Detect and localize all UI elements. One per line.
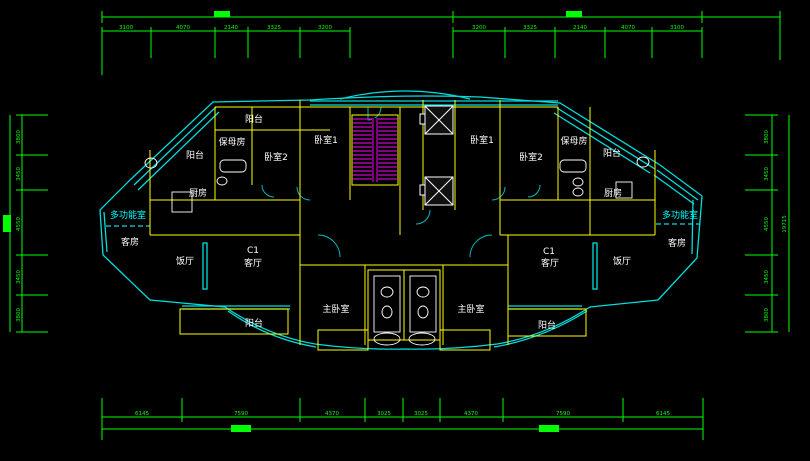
dim-label: 3325 xyxy=(523,25,537,31)
dim-label: 6145 xyxy=(656,411,670,417)
dim-label: 2140 xyxy=(573,25,587,31)
dim-label: 4550 xyxy=(16,217,22,231)
dim-label: 4370 xyxy=(325,411,339,417)
dimension-bottom: 6145 7590 4370 3025 3025 4370 7590 6145 xyxy=(102,398,703,440)
unit-code-left: C1 xyxy=(247,246,259,256)
room-label-bedroom2-right: 卧室2 xyxy=(519,151,543,163)
dim-label: 6145 xyxy=(135,411,149,417)
dim-label: 3025 xyxy=(377,411,391,417)
dim-label: 4070 xyxy=(621,25,635,31)
room-label-master-left: 主卧室 xyxy=(322,303,349,315)
room-label-living-right: 客厅 xyxy=(541,257,559,269)
elevator-shafts xyxy=(420,106,453,205)
dim-label: 3800 xyxy=(16,308,22,322)
staircase xyxy=(353,118,397,182)
dimension-left: 3800 3450 4550 3450 3800 xyxy=(3,115,48,332)
dim-label: 3450 xyxy=(16,270,22,284)
room-label-master-right: 主卧室 xyxy=(457,303,484,315)
dim-label: 3800 xyxy=(764,308,770,322)
room-label-bedroom2-left: 卧室2 xyxy=(264,151,288,163)
room-label-bedroom1-right: 卧室1 xyxy=(470,134,494,146)
building-shell xyxy=(100,91,702,349)
room-label-bedroom1-left: 卧室1 xyxy=(314,134,338,146)
dim-label: 7590 xyxy=(556,411,570,417)
tub-center-right xyxy=(409,333,435,345)
room-label-kitchen-right: 厨房 xyxy=(604,187,622,199)
dim-label: 3200 xyxy=(318,25,332,31)
dim-label: 3800 xyxy=(16,130,22,144)
room-label-nanny-right: 保母房 xyxy=(560,135,587,147)
elevator-1 xyxy=(420,106,453,134)
toilet-left xyxy=(217,177,227,185)
dim-label: 4550 xyxy=(764,217,770,231)
room-label-guest-left: 客房 xyxy=(121,236,139,248)
dim-label: 3800 xyxy=(764,130,770,144)
dim-label: 3450 xyxy=(764,270,770,284)
room-label-balcony-bottom-right: 阳台 xyxy=(538,319,556,331)
room-label-multifunction-right: 多功能室 xyxy=(662,209,698,221)
dim-label: 3100 xyxy=(119,25,133,31)
cad-drawing-canvas[interactable]: 3100 4070 2140 3325 3200 3200 3325 2140 … xyxy=(0,0,810,461)
dim-label: 3450 xyxy=(764,167,770,181)
bathtub-right xyxy=(560,160,586,172)
dim-label: 7590 xyxy=(234,411,248,417)
dim-text-blob xyxy=(3,215,11,232)
outer-facade xyxy=(100,96,702,349)
dim-text-blob xyxy=(231,425,251,432)
dim-label: 4370 xyxy=(464,411,478,417)
bathtub-left xyxy=(220,160,246,172)
dim-text-blob xyxy=(566,11,582,17)
dim-label: 3200 xyxy=(472,25,486,31)
room-label-balcony-left: 阳台 xyxy=(186,149,204,161)
floor-plan-svg: 3100 4070 2140 3325 3200 3200 3325 2140 … xyxy=(0,0,810,461)
room-label-multifunction-left: 多功能室 xyxy=(110,209,146,221)
basin-right xyxy=(573,188,583,196)
room-label-kitchen-left: 厨房 xyxy=(189,187,207,199)
room-label-balcony-top-left: 阳台 xyxy=(245,113,263,125)
dim-label: 3325 xyxy=(267,25,281,31)
toilet-right xyxy=(573,178,583,186)
tub-center-left xyxy=(374,333,400,345)
dimension-right: 3800 3450 4550 3450 3800 19715 xyxy=(745,115,789,332)
room-label-balcony-bottom-left: 阳台 xyxy=(245,317,263,329)
room-label-guest-right: 客房 xyxy=(668,237,686,249)
bath-cabinet-left xyxy=(374,276,400,332)
dim-label: 4070 xyxy=(176,25,190,31)
dim-overall-label: 19715 xyxy=(782,215,788,233)
dim-text-blob xyxy=(214,11,230,17)
dim-label: 3100 xyxy=(670,25,684,31)
room-label-living-left: 客厅 xyxy=(244,257,262,269)
dimension-top: 3100 4070 2140 3325 3200 3200 3325 2140 … xyxy=(102,11,780,75)
dim-label: 3025 xyxy=(414,411,428,417)
window-accent-left xyxy=(203,243,207,289)
dim-label: 3450 xyxy=(16,167,22,181)
room-label-nanny-left: 保母房 xyxy=(218,136,245,148)
window-accent-right xyxy=(593,243,597,289)
dim-text-blob xyxy=(539,425,559,432)
room-label-balcony-top-right: 阳台 xyxy=(603,147,621,159)
unit-code-right: C1 xyxy=(543,247,555,257)
room-label-dining-left: 饭厅 xyxy=(176,255,194,267)
bath-cabinet-right xyxy=(410,276,436,332)
dim-label: 2140 xyxy=(224,25,238,31)
room-label-dining-right: 饭厅 xyxy=(613,255,631,267)
elevator-2 xyxy=(420,177,453,205)
